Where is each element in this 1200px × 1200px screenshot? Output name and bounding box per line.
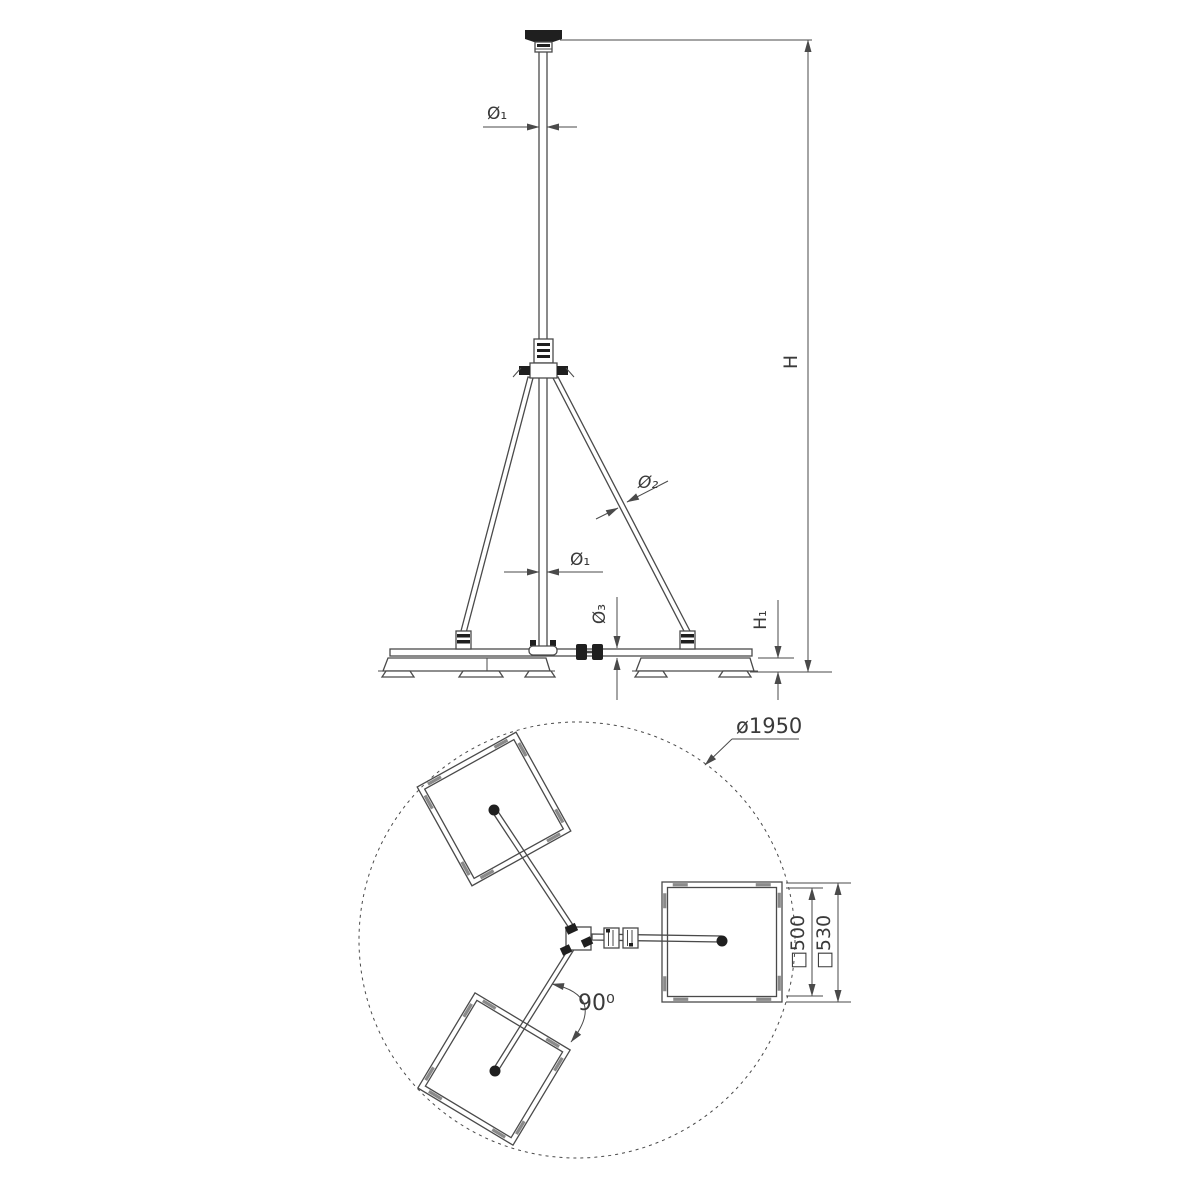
plate-center-dot: [490, 1066, 501, 1077]
circle-dia-callout: ø1950: [705, 714, 802, 765]
elevation-view: H H₁: [378, 30, 832, 700]
dia3-label: Ø₃: [590, 604, 610, 624]
plate-foot: [525, 671, 555, 677]
plate-center-dot: [717, 936, 728, 947]
tripod-leg-left: [461, 377, 533, 633]
plate-foot: [459, 671, 503, 677]
mast-top-collar: [535, 42, 552, 52]
callout-leader: [705, 739, 732, 765]
plate-outer-label: □530: [813, 915, 835, 969]
leg-clamp-right: [680, 631, 695, 649]
plate-foot: [382, 671, 414, 677]
leg-clamp-left: [456, 631, 471, 649]
plate-center-dot: [489, 805, 500, 816]
dia2-label: Ø₂: [637, 473, 658, 493]
h-dimension-label: H: [780, 355, 802, 369]
angle-label: 90⁰: [578, 991, 615, 1016]
hub-knob-right: [557, 366, 568, 375]
telescopic-clamp: [534, 339, 553, 363]
mast-top-cap: [525, 30, 562, 42]
base-arm: [390, 649, 752, 656]
drawing-page: H H₁: [0, 0, 1200, 1200]
plan-hub: [560, 923, 593, 956]
plan-view: ø1950: [359, 714, 851, 1158]
mast-technical-drawing: H H₁: [0, 0, 1200, 1200]
plate-foot: [719, 671, 751, 677]
h1-dimension-label: H₁: [751, 610, 771, 630]
arm-coupling: [576, 644, 603, 660]
dia1-top-dimension: Ø₁: [483, 104, 577, 127]
dia1-top-label: Ø₁: [487, 104, 507, 124]
dia1-mid-label: Ø₁: [570, 550, 590, 570]
plate-inner-label: □500: [787, 915, 809, 969]
tripod-hub-clamp: [513, 363, 574, 378]
angle-dimension: 90⁰: [552, 984, 615, 1042]
base-plate-right-elevation: [632, 658, 758, 677]
tripod-leg-right: [553, 377, 690, 633]
circle-dia-label: ø1950: [736, 714, 802, 738]
dia1-mid-dimension: Ø₁: [504, 550, 603, 572]
plate-foot: [635, 671, 667, 677]
base-plate-left-elevation: [378, 658, 555, 677]
square-dimensions: □500 □530: [786, 883, 851, 1002]
hub-knob-left: [519, 366, 530, 375]
